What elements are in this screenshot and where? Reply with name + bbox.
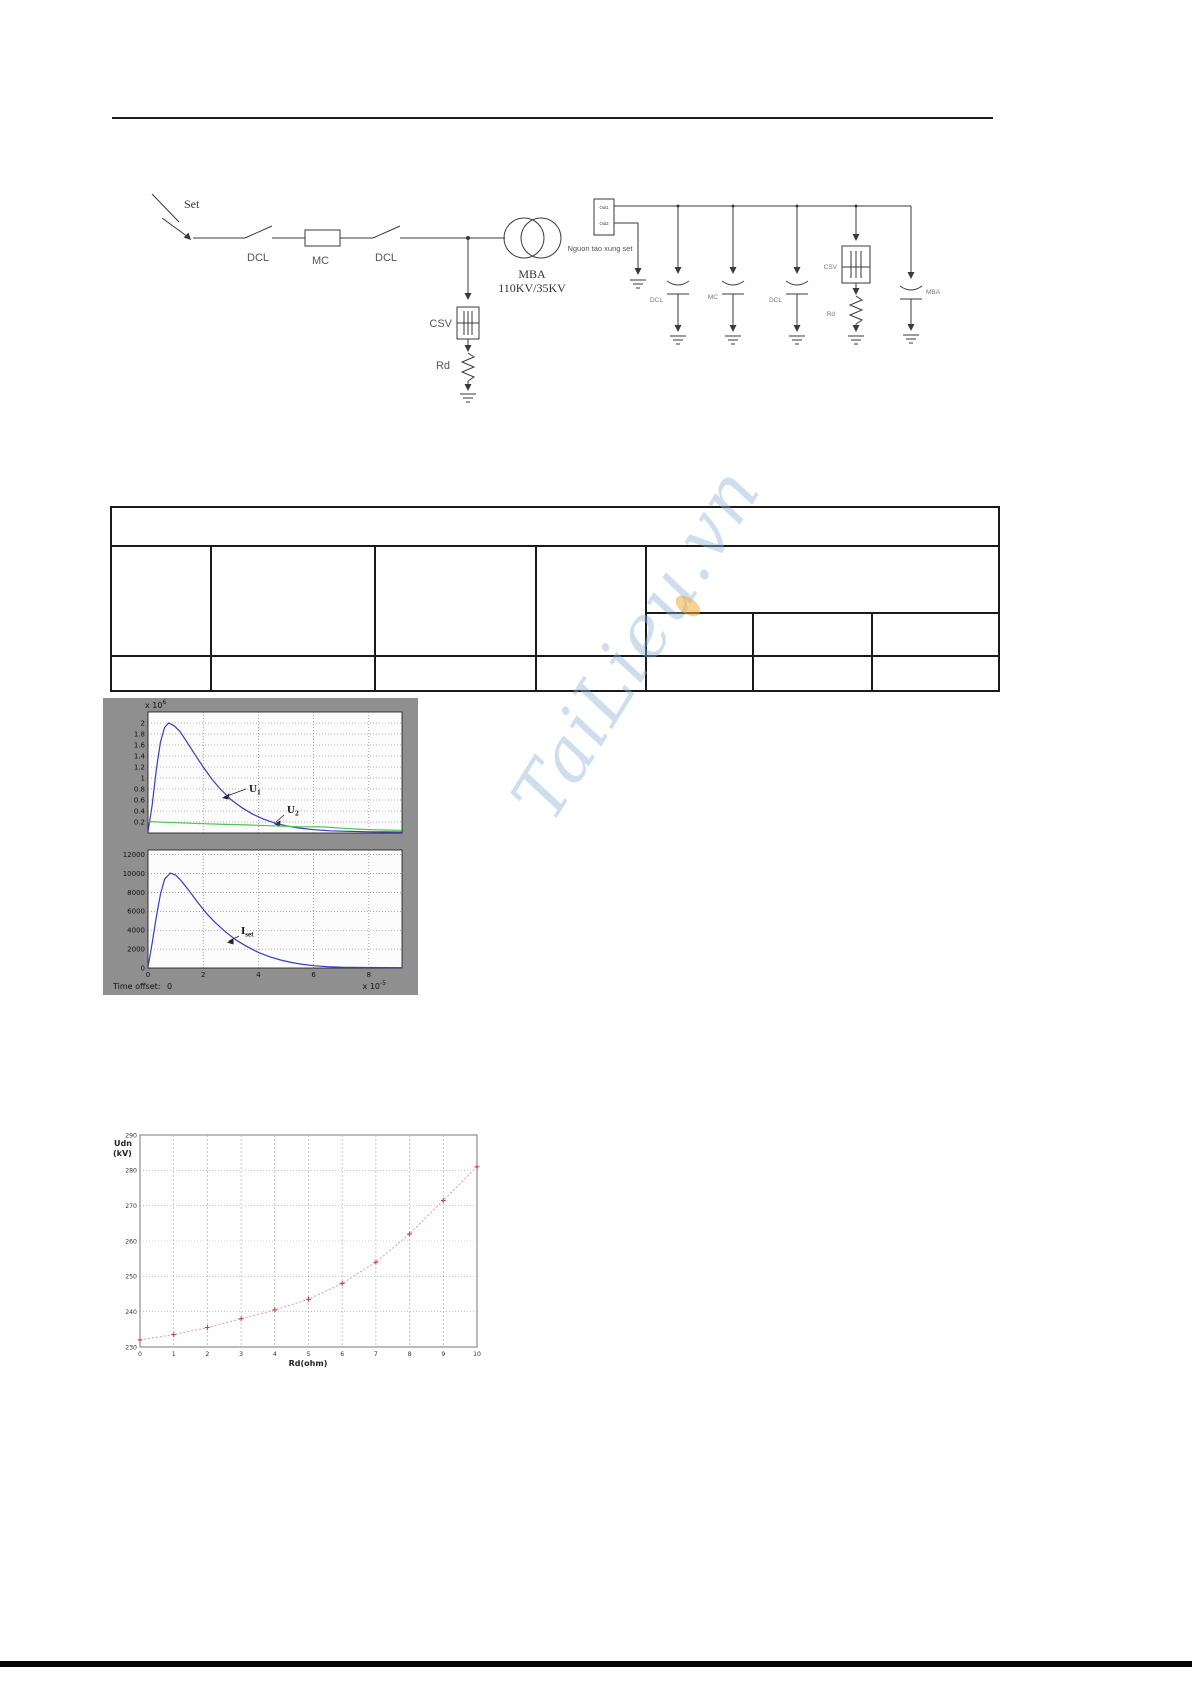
arrowhead [465,293,472,300]
capacitance-symbol [722,281,744,294]
table-line [535,545,537,692]
x-tick-label: 2 [201,971,205,979]
table-line [210,545,212,692]
x-tick-label: 4 [273,1351,277,1358]
dcl1-label: DCL [650,297,663,304]
arrowhead [853,325,860,332]
y-tick-label: 8000 [127,889,145,897]
arrowhead [794,325,801,332]
y-tick-label: 270 [125,1203,137,1210]
capacitance-symbol [900,286,922,299]
dcl1-label: DCL [247,252,269,264]
y-tick-label: 4000 [127,927,145,935]
lightning-arrowhead [184,233,194,243]
x-tick-label: 5 [307,1351,311,1358]
resistor-symbol [850,296,862,324]
simulation-figure: x 106 x 10-5 Time offset: 0 U1 U2 Iset 0… [103,698,418,995]
y-tick-label: 12000 [123,851,145,859]
document-page: Set DCL MC DCL MBA 110KV/35KV CSV [0,0,1192,1685]
resistor-label: Rd [436,360,450,372]
simulation-plots: x 106 x 10-5 Time offset: 0 U1 U2 Iset 0… [103,698,418,995]
y-tick-label: 0.2 [134,818,145,826]
ground-symbol [630,280,646,288]
y-tick-label: 230 [125,1344,137,1351]
source-out2-label: Out2 [599,221,609,226]
capacitance-symbol [786,281,808,294]
footer-bar [0,1661,1192,1667]
y-tick-label: 0.4 [134,807,146,815]
y-tick-label: 250 [125,1274,137,1281]
y-tick-label: 290 [125,1132,137,1139]
dcl2-label: DCL [769,297,782,304]
y-tick-label: 280 [125,1168,137,1175]
y-tick-label: 1 [141,774,145,782]
udn-chart: Udn (kV) Rd(ohm) 23024025026027028029001… [100,1120,500,1375]
y-tick-label: 6000 [127,908,145,916]
circuit-diagram: Set DCL MC DCL MBA 110KV/35KV CSV [100,150,980,420]
arrowhead [853,288,860,295]
x-tick-label: 3 [239,1351,243,1358]
arrowhead [730,325,737,332]
x-tick-label: 7 [374,1351,378,1358]
time-offset-value: 0 [167,982,172,991]
transformer-symbol [504,218,544,258]
resistor-label: Rd [827,311,836,318]
arrowhead [730,267,737,274]
voltage-plot-axes [148,712,402,833]
results-table [110,506,1000,692]
disconnector-2 [373,226,400,238]
x-tick-label: 6 [311,971,316,979]
ground-symbol [903,335,919,343]
lightning-icon [152,194,188,237]
table-line [374,545,376,692]
y-tick-label: 0.6 [134,796,146,804]
ground-symbol [670,336,686,344]
arrowhead [853,234,860,241]
table-line [645,612,1000,614]
y-tick-label: 2000 [127,945,145,953]
left-circuit: Set DCL MC DCL MBA 110KV/35KV CSV [152,194,566,402]
x-tick-label: 0 [146,971,150,979]
x-tick-label: 8 [367,971,371,979]
transformer-symbol [521,218,561,258]
arrowhead [908,272,915,279]
y-tick-label: 0.8 [134,785,145,793]
arrowhead [794,267,801,274]
breaker-box [305,230,340,246]
capacitance-symbol [667,281,689,294]
source-out1-label: Out1 [599,205,609,210]
arrowhead [465,384,472,391]
resistor-symbol [462,353,474,381]
right-circuit: Out1 Out2 Nguon tao xung set DCL [567,199,940,344]
table-line [110,506,1000,508]
disconnector-1 [245,226,272,238]
x-tick-label: 8 [408,1351,412,1358]
header-rule [112,117,993,119]
y-tick-label: 240 [125,1309,137,1316]
transformer-label: MBA [518,267,546,281]
x-tick-label: 6 [340,1351,344,1358]
x-tick-label: 10 [473,1351,481,1358]
arrester-label: CSV [824,264,838,271]
table-line [752,612,754,692]
table-line [110,506,112,692]
arrowhead [675,267,682,274]
y-tick-label: 1.6 [134,741,146,749]
arrowhead [908,324,915,331]
y-tick-label: 2 [141,719,145,727]
x-tick-label: 1 [172,1351,176,1358]
arrowhead [675,325,682,332]
x-tick-label: 2 [205,1351,209,1358]
table-line [871,612,873,692]
time-offset-label: Time offset: [112,982,160,991]
x-tick-label: 0 [138,1351,142,1358]
y-tick-label: 1.4 [134,752,146,760]
y-exponent-label: x 106 [145,699,166,710]
y-axis-label-line1: Udn [114,1139,132,1148]
y-tick-label: 260 [125,1238,137,1245]
dcl2-label: DCL [375,252,397,264]
y-axis-label-line2: (kV) [113,1149,132,1158]
y-tick-label: 10000 [123,870,145,878]
y-tick-label: 1.8 [134,730,145,738]
x-exponent-label: x 10-5 [363,980,387,991]
ground-symbol [460,394,476,402]
ground-symbol [725,336,741,344]
arrowhead [465,345,472,352]
source-label: Nguon tao xung set [567,244,633,253]
table-line [110,545,1000,547]
mba-label: MBA [926,289,941,296]
x-tick-label: 9 [441,1351,445,1358]
table-line [998,506,1000,692]
ground-symbol [848,336,864,344]
arrester-label: CSV [429,318,452,330]
x-tick-label: 4 [256,971,261,979]
mc-label: MC [708,294,718,301]
table-line [110,690,1000,692]
transformer-rating: 110KV/35KV [498,281,566,295]
table-line [110,655,1000,657]
y-tick-label: 0 [141,964,145,972]
arrowhead [635,268,642,275]
x-axis-label: Rd(ohm) [289,1359,328,1368]
surge-label: Set [184,197,200,211]
y-tick-label: 1.2 [134,763,145,771]
table-line [645,545,647,692]
mc-label: MC [312,255,329,267]
current-plot-axes [148,850,402,968]
ground-symbol [789,336,805,344]
